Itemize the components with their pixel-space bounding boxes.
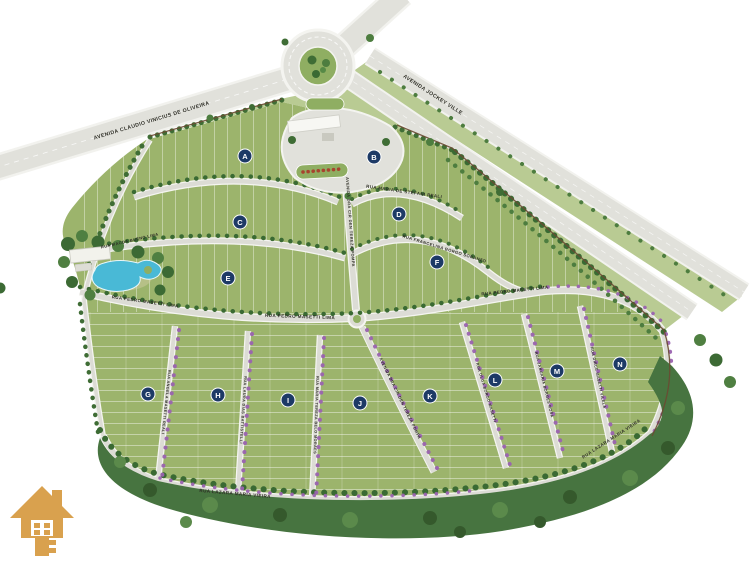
roundabout xyxy=(282,30,354,102)
svg-text:B: B xyxy=(371,153,377,162)
entrance-median-upper xyxy=(306,98,344,110)
masterplan-svg: A B C D E F G H I J K L M N AVENIDA CLAU… xyxy=(0,0,750,564)
svg-text:E: E xyxy=(225,274,230,283)
badge-N: N xyxy=(613,357,627,371)
site-plan-map: A B C D E F G H I J K L M N AVENIDA CLAU… xyxy=(0,0,750,564)
svg-text:M: M xyxy=(554,367,560,376)
svg-text:A: A xyxy=(242,152,248,161)
badge-A: A xyxy=(238,149,252,163)
badge-J: J xyxy=(353,396,367,410)
pool-island xyxy=(144,266,152,274)
svg-text:D: D xyxy=(396,210,402,219)
svg-text:K: K xyxy=(427,392,433,401)
badge-B: B xyxy=(367,150,381,164)
badge-L: L xyxy=(488,373,502,387)
badge-K: K xyxy=(423,389,437,403)
svg-text:C: C xyxy=(237,218,243,227)
svg-text:G: G xyxy=(145,390,151,399)
badge-H: H xyxy=(211,388,225,402)
badge-M: M xyxy=(550,364,564,378)
svg-text:J: J xyxy=(358,399,362,408)
svg-text:I: I xyxy=(287,396,289,405)
svg-text:N: N xyxy=(617,360,622,369)
badge-C: C xyxy=(233,215,247,229)
gatehouse-booth xyxy=(322,133,334,141)
svg-text:F: F xyxy=(435,258,440,267)
badge-E: E xyxy=(221,271,235,285)
svg-text:L: L xyxy=(493,376,498,385)
badge-G: G xyxy=(141,387,155,401)
svg-text:H: H xyxy=(215,391,220,400)
badge-F: F xyxy=(430,255,444,269)
badge-D: D xyxy=(392,207,406,221)
badge-I: I xyxy=(281,393,295,407)
